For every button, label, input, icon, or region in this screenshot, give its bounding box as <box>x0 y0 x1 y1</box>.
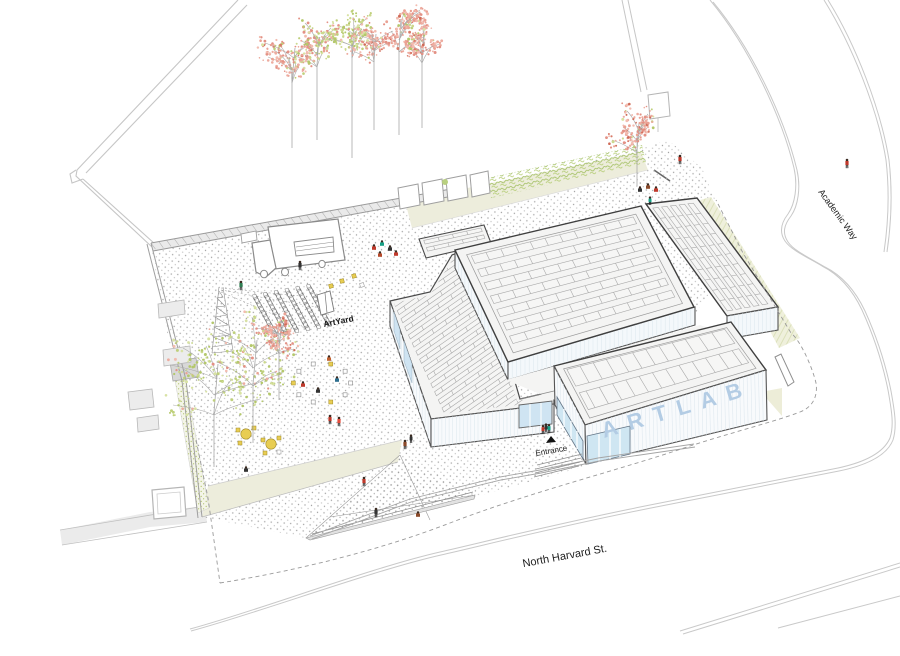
svg-text:Academic Way: Academic Way <box>816 187 859 242</box>
svg-text:North Harvard St.: North Harvard St. <box>522 543 608 570</box>
